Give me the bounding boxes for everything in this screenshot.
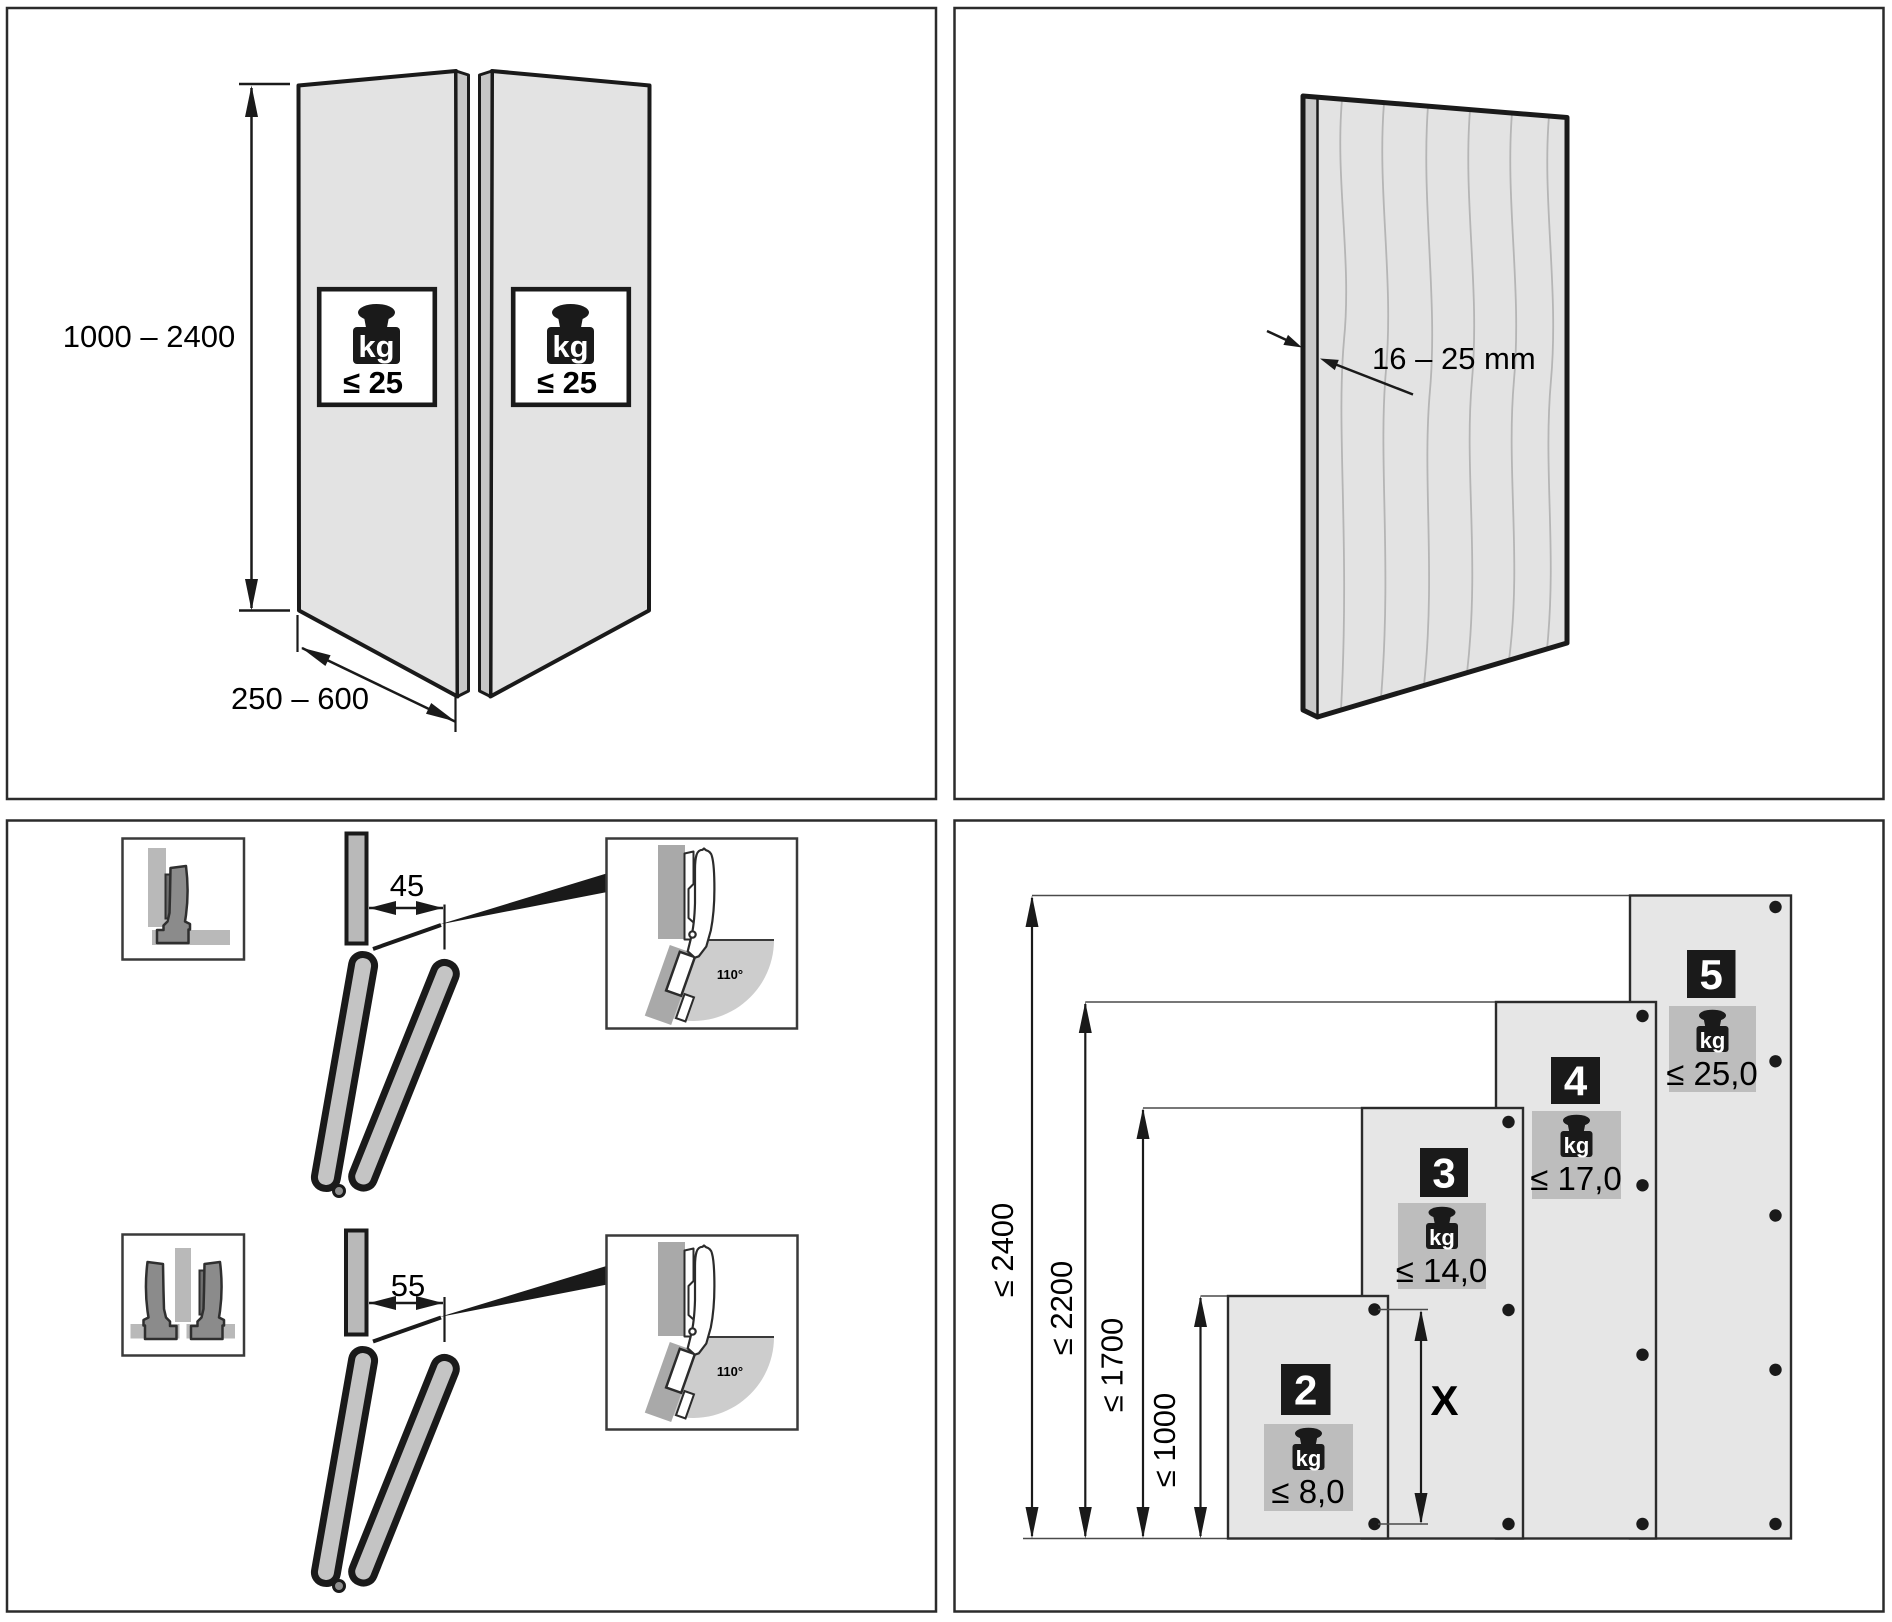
svg-text:≤ 2200: ≤ 2200: [1044, 1261, 1079, 1356]
svg-text:1000 – 2400: 1000 – 2400: [63, 319, 235, 354]
svg-text:≤ 25,0: ≤ 25,0: [1666, 1055, 1758, 1092]
svg-text:250 – 600: 250 – 600: [231, 681, 369, 716]
svg-text:kg: kg: [1700, 1028, 1726, 1053]
svg-text:kg: kg: [1429, 1225, 1455, 1250]
svg-text:≤ 2400: ≤ 2400: [985, 1203, 1020, 1298]
svg-text:≤ 25: ≤ 25: [343, 365, 403, 400]
svg-text:2: 2: [1294, 1367, 1317, 1414]
svg-text:kg: kg: [358, 329, 394, 364]
svg-text:≤ 1700: ≤ 1700: [1095, 1318, 1130, 1413]
svg-text:≤ 25: ≤ 25: [537, 365, 597, 400]
svg-text:kg: kg: [1564, 1133, 1590, 1158]
svg-text:5: 5: [1700, 951, 1723, 998]
svg-text:X: X: [1430, 1377, 1458, 1424]
svg-text:≤ 8,0: ≤ 8,0: [1271, 1473, 1344, 1510]
svg-text:16 – 25 mm: 16 – 25 mm: [1372, 341, 1536, 376]
svg-text:4: 4: [1564, 1058, 1588, 1105]
svg-text:110°: 110°: [717, 967, 743, 982]
svg-text:≤ 14,0: ≤ 14,0: [1396, 1252, 1488, 1289]
svg-text:3: 3: [1432, 1150, 1455, 1197]
svg-text:kg: kg: [1296, 1446, 1322, 1471]
svg-text:45: 45: [390, 868, 424, 903]
svg-text:≤ 17,0: ≤ 17,0: [1530, 1160, 1622, 1197]
svg-text:≤ 1000: ≤ 1000: [1147, 1393, 1182, 1488]
svg-text:kg: kg: [552, 329, 588, 364]
